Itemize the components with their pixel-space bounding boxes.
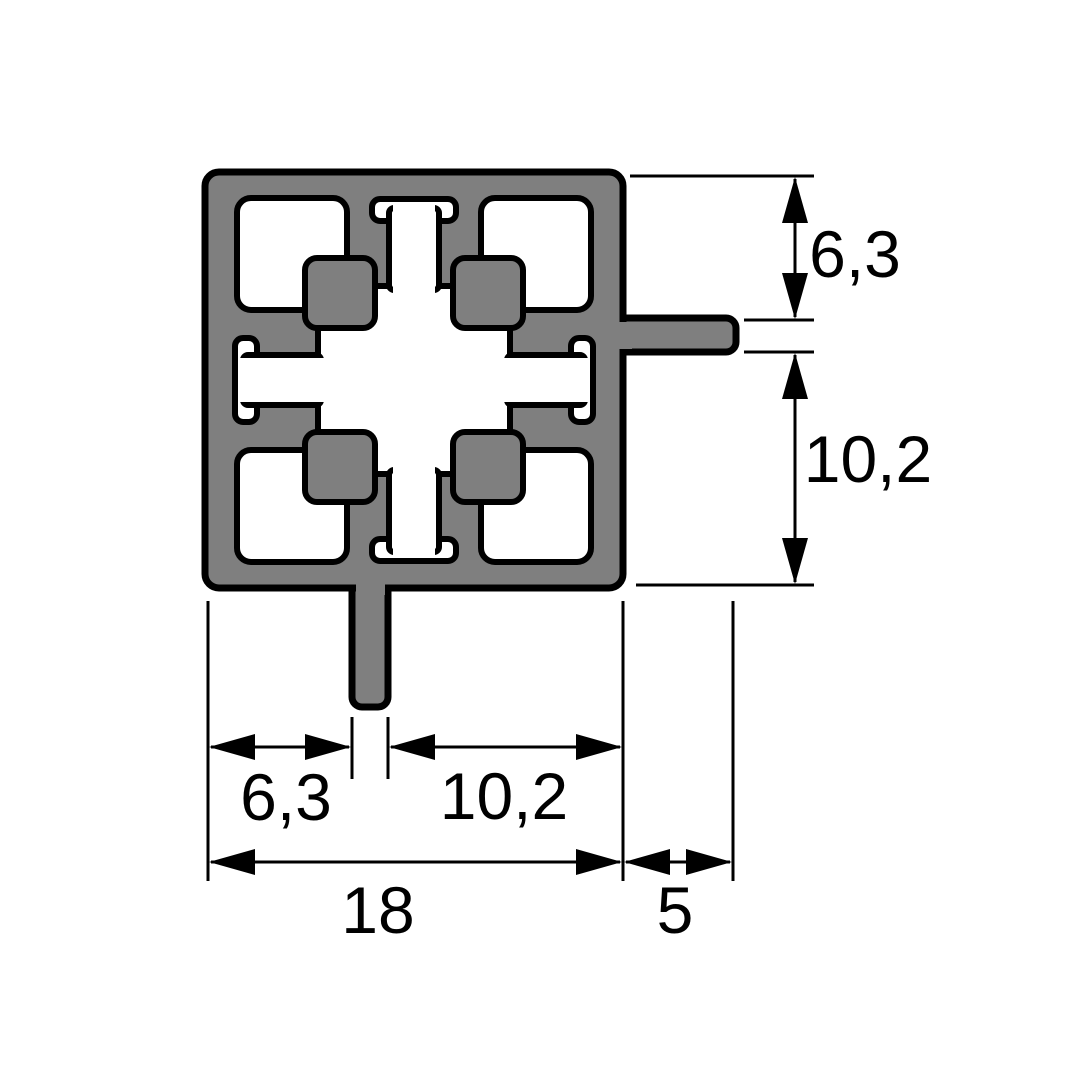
arrowhead [209,849,255,875]
corner-web-top-right [453,258,523,328]
dim-label-bottom-middle: 10,2 [440,759,568,833]
bottom-tab-root-cover [356,581,385,595]
arrowhead [576,734,622,760]
arrowhead [686,849,732,875]
dim-label-bottom-left: 6,3 [240,760,332,834]
arrowhead [782,273,808,319]
arrowhead [782,353,808,399]
profile-cutouts-group [235,198,593,562]
dim-label-side-top: 6,3 [809,217,901,291]
dim-label-side-bottom: 10,2 [804,422,932,496]
arrowhead [782,538,808,584]
arrowhead [305,734,351,760]
corner-web-bottom-left [305,432,375,502]
dim-label-tab-projection: 5 [657,873,694,947]
arrowhead [389,734,435,760]
arrowhead [209,734,255,760]
right-tab-root-cover [614,322,632,349]
arrowhead [782,177,808,223]
arrowhead [576,849,622,875]
dim-label-bottom-overall: 18 [341,873,414,947]
corner-web-top-left [305,258,375,328]
corner-web-bottom-right [453,432,523,502]
arrowhead [624,849,670,875]
profile-cross-section-drawing: 6,3 10,2 6,3 10,2 18 5 [0,0,1080,1080]
technical-drawing-canvas: 6,3 10,2 6,3 10,2 18 5 [0,0,1080,1080]
